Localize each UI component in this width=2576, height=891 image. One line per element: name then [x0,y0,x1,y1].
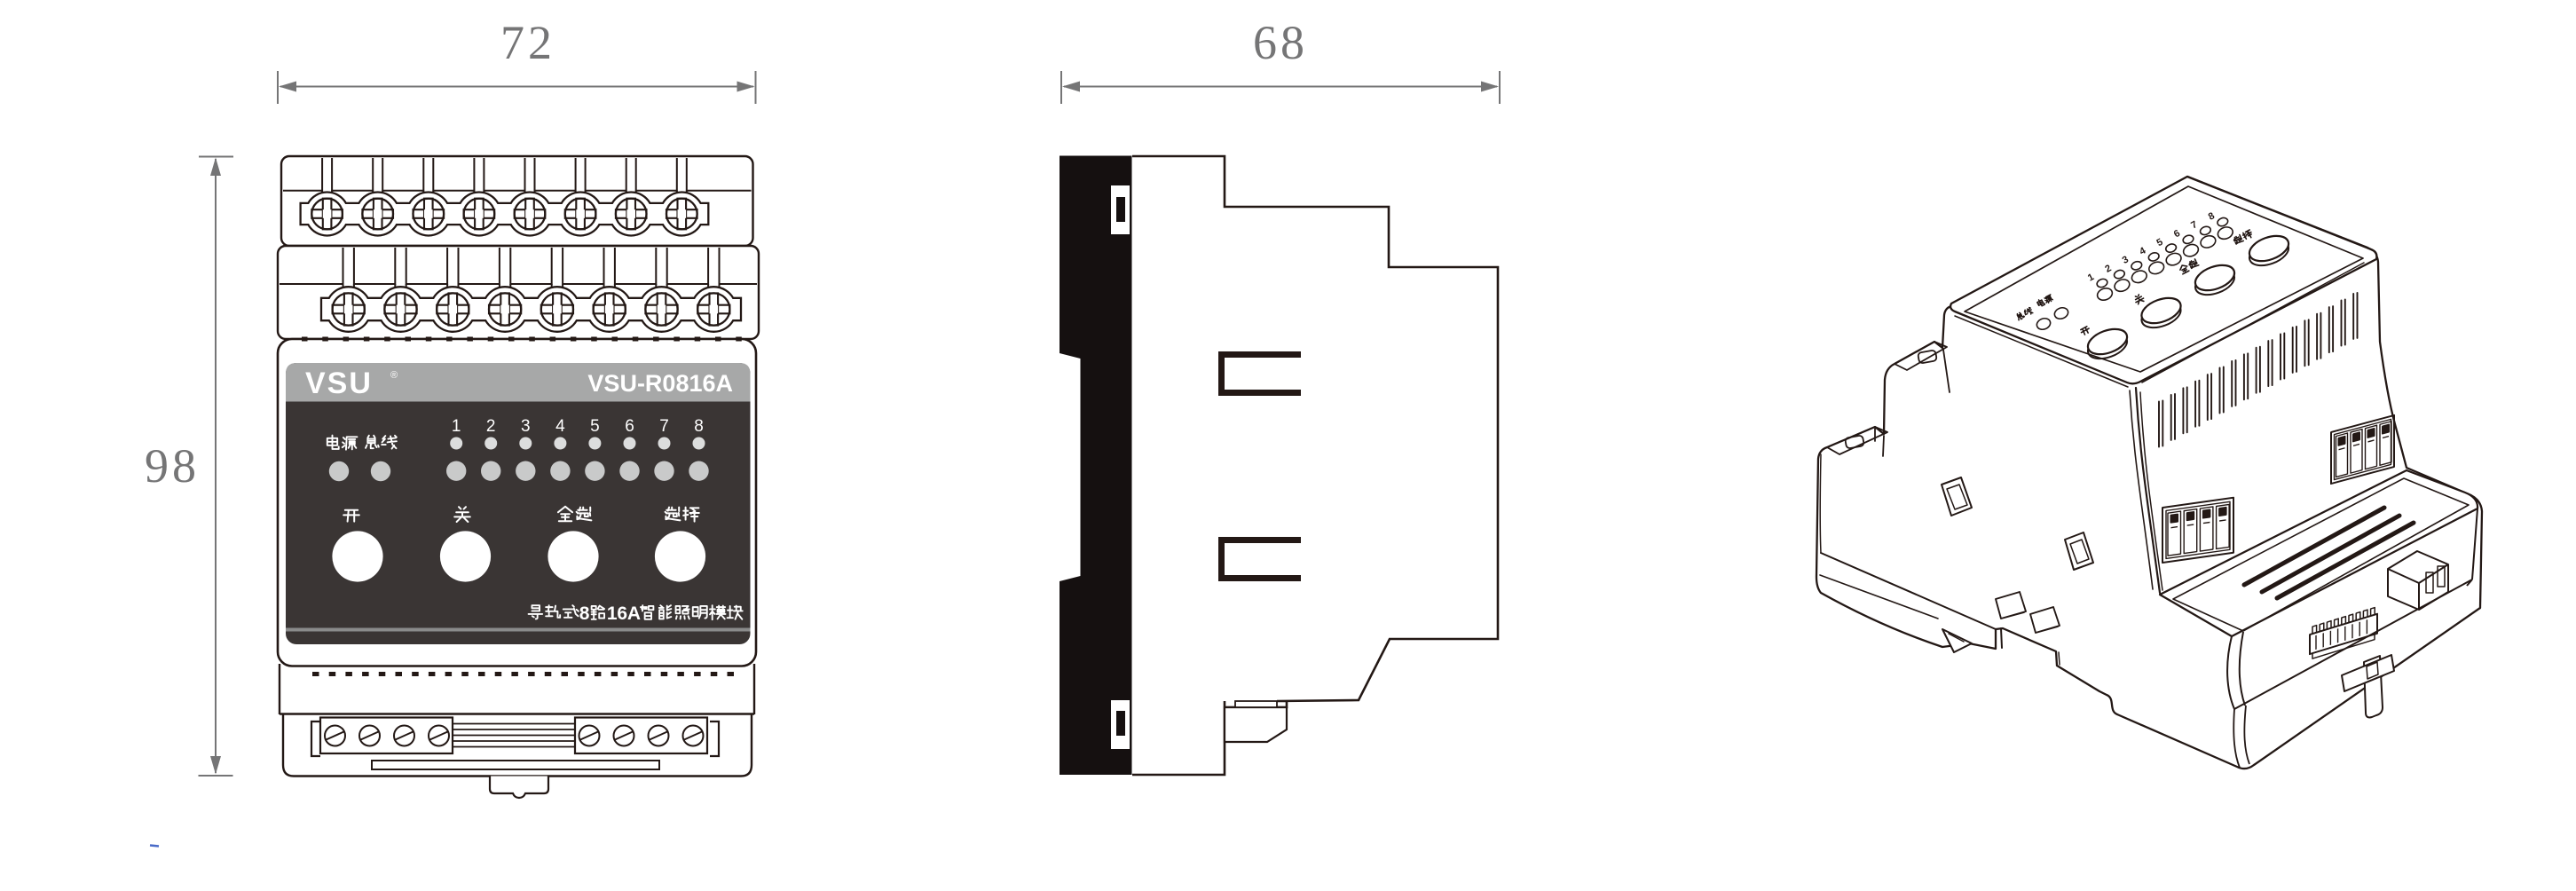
svg-text:8: 8 [694,417,704,436]
svg-text:®: ® [390,370,398,381]
svg-text:VSU-R0816A: VSU-R0816A [587,370,733,397]
svg-text:7: 7 [659,417,669,436]
svg-text:1: 1 [452,417,461,436]
svg-text:A: A [627,603,641,624]
svg-text:8: 8 [579,603,590,624]
svg-text:5: 5 [590,417,600,436]
svg-text:4: 4 [555,417,565,436]
svg-text:1: 1 [607,603,618,624]
svg-text:72: 72 [500,16,555,69]
svg-text:6: 6 [625,417,634,436]
svg-text:2: 2 [486,417,496,436]
svg-text:6: 6 [617,603,627,624]
svg-text:98: 98 [145,439,200,493]
svg-text:VSU: VSU [305,367,373,400]
svg-text:3: 3 [521,417,531,436]
svg-text:68: 68 [1253,16,1308,69]
